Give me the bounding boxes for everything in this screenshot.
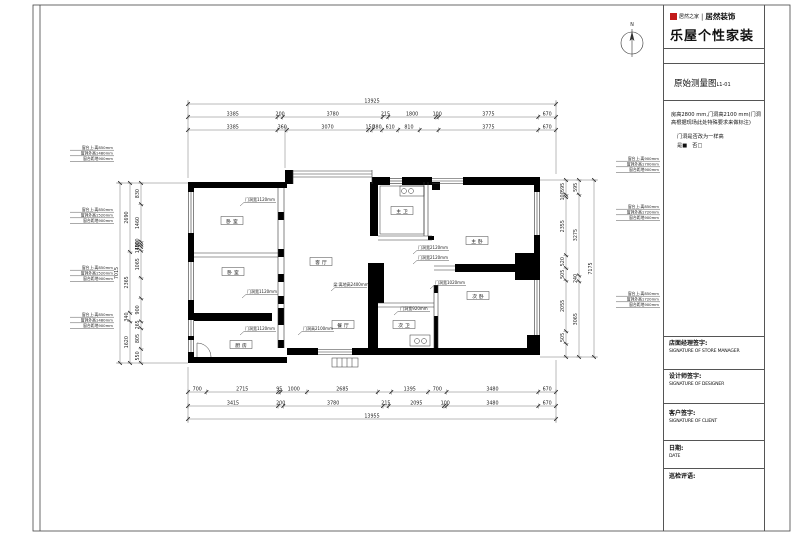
dim-label: 1000: [288, 386, 300, 392]
dim-label: 810: [404, 124, 413, 130]
dim-label: 700: [433, 386, 442, 392]
annotation-text: 门洞宽1020mm: [435, 279, 465, 285]
dim-label: 215: [381, 111, 390, 117]
dim-label: 3480: [486, 400, 498, 406]
room-label-bedroom-2: 卧室: [222, 268, 244, 276]
dim-label: 100: [560, 191, 566, 200]
dim-label: 670: [543, 386, 552, 392]
dim-row-left_inner: 83014601001001451065900265805550: [135, 181, 143, 365]
dim-row-top_row3: 338536030701503806108103775670: [186, 124, 558, 132]
drawing-sheet: N: [0, 0, 795, 537]
dim-label: 595: [573, 183, 579, 192]
brand-divider: |: [701, 13, 703, 21]
annotation-door-height: 门洞高2100mm: [298, 325, 334, 335]
window-note-right-3: 窗台上:离850mm窗洞外高1720mm窗台距地900mm: [616, 291, 660, 307]
dim-label: 3070: [321, 124, 333, 130]
dim-label: 670: [543, 400, 552, 406]
room-label-master-bath: 主卫: [391, 207, 413, 215]
room-label-living-room: 客厅: [310, 258, 332, 266]
dim-label: 340: [124, 312, 130, 321]
room-label-second-bath: 次卫: [393, 321, 415, 329]
title-block: 居然之家 | 居然装饰 乐屋个性家装 原始测量图L1-01 房高2800 mm,…: [663, 5, 765, 531]
dim-label: 2690: [124, 211, 130, 223]
dim-label: 3385: [227, 111, 239, 117]
window-note-line: 窗台距地900mm: [83, 218, 113, 223]
dim-label: 100: [441, 400, 450, 406]
window-note-line: 窗台距地900mm: [629, 302, 659, 307]
window-note-line: 窗台上:离850mm: [82, 207, 113, 212]
dim-label: 505: [560, 333, 566, 342]
annotation-door-3: 门洞宽1120mm: [240, 325, 276, 335]
windows-left-wall: [189, 192, 194, 352]
dim-label: 550: [135, 351, 141, 360]
date-row: 日期: DATE: [669, 445, 683, 460]
window-note-left-1: 窗台上:离850mm窗洞外高1480mm窗台距地900mm: [70, 145, 114, 161]
dim-label: 670: [543, 111, 552, 117]
window-note-line: 窗台距地900mm: [83, 323, 113, 328]
window-note-line: 窗台距地900mm: [83, 276, 113, 281]
north-compass-icon: N: [621, 22, 643, 57]
dim-row-right_outer: 7175: [588, 178, 596, 359]
room-name: 次卫: [398, 322, 412, 329]
brand-name-bold: 居然装饰: [705, 11, 735, 22]
designer-signature-row: 设计师签字: SIGNATURE OF DESIGNER: [669, 373, 724, 388]
room-label-kitchen: 厨房: [230, 341, 252, 349]
room-name: 客厅: [315, 259, 329, 266]
dim-label: 830: [135, 189, 141, 198]
window-note-left-3: 窗台上:离850mm窗洞外高1520mm窗台距地900mm: [70, 265, 114, 281]
dim-label: 145: [135, 244, 141, 253]
dim-label: 2365: [124, 276, 130, 288]
window-note-right-2: 窗台上:离850mm窗洞外高1720mm窗台距地900mm: [616, 204, 660, 220]
dim-row-right_inner: 59510023555205052055505: [560, 178, 568, 359]
door-annotations: 门洞宽1120mm门洞宽1120mm门洞宽1120mm门洞宽2120mm门洞宽2…: [240, 196, 466, 335]
room-label-master-bedroom: 主卧: [466, 237, 488, 245]
dim-row-left_mid: 269023653401620: [124, 181, 132, 365]
room-name: 卧室: [226, 218, 240, 225]
dim-row-bottom_row2: 3415200378021520951003480670: [186, 400, 558, 408]
window-note-line: 窗台上:离850mm: [82, 145, 113, 150]
dim-label: 265: [135, 320, 141, 329]
dim-label: 2715: [236, 386, 248, 392]
dim-label: 95: [276, 386, 282, 392]
annotation-text: 门洞宽2120mm: [418, 254, 448, 260]
dim-row-bottom_row1: 7002715951000268513957003480670: [186, 386, 558, 394]
dim-label: 3780: [327, 400, 339, 406]
window-notes: 窗台上:离850mm窗洞外高1480mm窗台距地900mm窗台上:离850mm窗…: [70, 145, 660, 328]
dim-label: 3065: [573, 313, 579, 325]
room-name: 餐厅: [337, 322, 351, 329]
annotation-door-7: 门洞宽920mm: [394, 305, 430, 315]
annotation-door-5: 门洞宽2120mm: [413, 254, 449, 264]
room-name: 次卧: [472, 293, 486, 300]
annotation-text: 门洞宽1120mm: [245, 325, 275, 331]
annotation-beam: 梁:离地高2400mm: [331, 281, 369, 291]
dim-row-bottom_total: 13955: [186, 413, 558, 421]
dim-label: 2685: [336, 386, 348, 392]
dim-label: 670: [543, 124, 552, 130]
window-note-line: 窗洞外高1520mm: [81, 213, 114, 218]
dim-row-top_row2: 3385200378021518001003775670: [186, 111, 558, 119]
dim-label: 7175: [588, 262, 594, 274]
annotation-text: 门洞宽1120mm: [247, 288, 277, 294]
dim-label: 2095: [410, 400, 422, 406]
dim-label: 1065: [135, 258, 141, 270]
inspection-row: 巡检评语:: [669, 473, 695, 481]
second-bath-fixtures: [410, 335, 430, 346]
annotation-door-2: 门洞宽1120mm: [242, 288, 278, 298]
drawing-title: 原始测量图L1-01: [674, 77, 731, 89]
annotation-text: 门洞宽2120mm: [418, 244, 448, 250]
dim-label: 700: [193, 386, 202, 392]
dim-label: 1800: [406, 111, 418, 117]
dim-row-left_outer: 7015: [114, 181, 122, 365]
brand-logo-icon: [670, 13, 677, 20]
dim-label: 3275: [573, 229, 579, 241]
dim-label: 1620: [124, 336, 130, 348]
dim-label: 360: [278, 124, 287, 130]
dim-label: 1460: [135, 217, 141, 229]
room-name: 卧室: [227, 269, 241, 276]
room-label-bedroom-1: 卧室: [221, 217, 243, 225]
dim-label: 3385: [227, 124, 239, 130]
room-name: 厨房: [235, 342, 249, 349]
dim-label: 215: [381, 400, 390, 406]
dim-label: 595: [560, 183, 566, 192]
dim-label: 2355: [560, 220, 566, 232]
window-top-2: [390, 179, 402, 184]
dim-label: 505: [560, 270, 566, 279]
window-note-line: 窗台距地900mm: [629, 215, 659, 220]
annotation-door-1: 门洞宽1120mm: [240, 196, 276, 206]
annotation-text: 门洞高2100mm: [303, 325, 333, 331]
dim-label: 520: [560, 257, 566, 266]
dim-row-top_total: 13925: [186, 98, 558, 106]
entry-steps: [332, 358, 358, 367]
compass-n-label: N: [630, 22, 634, 28]
dim-label: 13955: [364, 413, 379, 419]
brand-main-title: 乐屋个性家装: [670, 25, 754, 44]
window-note-line: 窗洞外高1700mm: [627, 162, 660, 167]
dim-label: 1395: [404, 386, 416, 392]
dim-label: 200: [276, 111, 285, 117]
dim-label: 240: [573, 274, 579, 283]
dim-label: 100: [433, 111, 442, 117]
dim-label: 3415: [227, 400, 239, 406]
window-note-line: 窗台上:离850mm: [82, 265, 113, 270]
window-note-line: 窗洞外高1720mm: [627, 297, 660, 302]
window-note-line: 窗洞外高1720mm: [627, 210, 660, 215]
window-note-left-2: 窗台上:离850mm窗洞外高1520mm窗台距地900mm: [70, 207, 114, 223]
window-note-line: 窗洞外高1520mm: [81, 271, 114, 276]
dim-row-right_mid: 59532752403065: [573, 178, 581, 359]
entry-door-arc: [197, 343, 211, 357]
window-note-line: 窗台上:离900mm: [628, 156, 659, 161]
dim-label: 3775: [482, 124, 494, 130]
height-note: 房高2800 mm,门洞高2100 mm(门洞 高根据现场此处特殊要求来做标注): [671, 111, 761, 127]
window-symbols: [189, 170, 540, 352]
dim-label: 3480: [486, 386, 498, 392]
window-note-line: 窗台上:离850mm: [628, 291, 659, 296]
window-note-left-4: 窗台上:离850mm窗洞外高1480mm窗台距地900mm: [70, 312, 114, 328]
dim-label: 13925: [364, 98, 379, 104]
brand-name-small: 居然之家: [679, 13, 699, 20]
annotation-text: 门洞宽920mm: [400, 305, 428, 311]
window-note-line: 窗洞外高1480mm: [81, 151, 114, 156]
annotation-text: 门洞宽1120mm: [245, 196, 275, 202]
dim-label: 610: [386, 124, 395, 130]
annotation-door-4: 门洞宽2120mm: [413, 244, 449, 254]
door-question: 门洞是否改为一样高 是■ 否□: [677, 133, 724, 151]
dim-label: 3780: [327, 111, 339, 117]
window-note-line: 窗台距地900mm: [83, 156, 113, 161]
dim-label: 200: [276, 400, 285, 406]
window-top-balcony: [293, 170, 372, 184]
dim-label: 7015: [114, 267, 120, 279]
room-name: 主卧: [471, 238, 485, 245]
dim-label: 805: [135, 334, 141, 343]
drawing-number: L1-01: [717, 82, 731, 88]
window-note-line: 窗台距地900mm: [629, 167, 659, 172]
room-label-second-bedroom: 次卧: [467, 292, 489, 300]
brand-logo: 居然之家 | 居然装饰: [670, 11, 735, 22]
dim-label: 380: [373, 124, 382, 130]
dim-label: 3775: [482, 111, 494, 117]
annotation-text: 梁:离地高2400mm: [333, 281, 368, 287]
door-question-answer: 是■ 否□: [677, 142, 724, 151]
window-note-line: 窗洞外高1480mm: [81, 318, 114, 323]
window-note-line: 窗台上:离850mm: [628, 204, 659, 209]
window-note-right-1: 窗台上:离900mm窗洞外高1700mm窗台距地900mm: [616, 156, 660, 172]
dim-label: 900: [135, 305, 141, 314]
room-label-dining-room: 餐厅: [332, 321, 354, 329]
room-name: 主卫: [396, 208, 410, 215]
client-signature-row: 客户签字: SIGNATURE OF CLIENT: [669, 410, 717, 425]
window-note-line: 窗台上:离850mm: [82, 312, 113, 317]
store-manager-signature-row: 店面经理签字: SIGNATURE OF STORE MANAGER: [669, 340, 739, 355]
dim-label: 2055: [560, 300, 566, 312]
